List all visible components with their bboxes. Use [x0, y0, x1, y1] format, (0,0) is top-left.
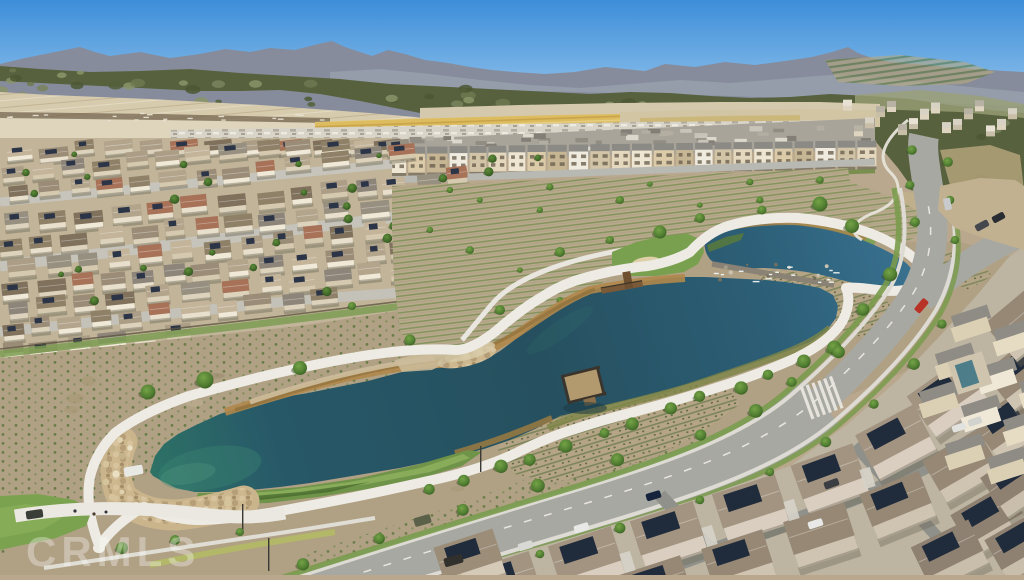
svg-text:CRMLS: CRMLS — [26, 528, 200, 575]
